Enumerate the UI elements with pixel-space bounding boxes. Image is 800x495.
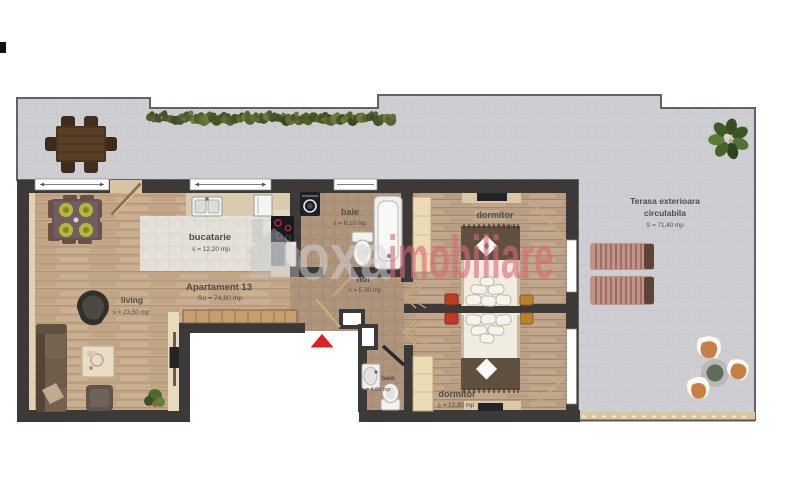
svg-text:dormitor: dormitor [439, 389, 476, 399]
svg-text:bucatarie: bucatarie [189, 232, 231, 243]
svg-text:s = 12,20 mp: s = 12,20 mp [192, 246, 230, 253]
svg-text:oxa: oxa [297, 221, 392, 293]
svg-text:s = 4,80 mp: s = 4,80 mp [362, 387, 391, 393]
svg-text:s = 12,30 mp: s = 12,30 mp [438, 402, 475, 409]
svg-text:baie: baie [341, 207, 359, 217]
svg-text:living: living [121, 295, 143, 305]
svg-text:S = 71,40 mp: S = 71,40 mp [646, 222, 684, 229]
svg-text:Su = 74,80 mp: Su = 74,80 mp [198, 295, 243, 302]
svg-text:circulabila: circulabila [644, 208, 686, 218]
svg-text:s = 23,50 mp: s = 23,50 mp [113, 309, 150, 316]
svg-text:baie: baie [381, 375, 395, 382]
svg-text:Apartament 13: Apartament 13 [186, 282, 252, 293]
svg-text:imobiliare: imobiliare [388, 226, 554, 292]
svg-text:dormitor: dormitor [477, 210, 514, 220]
svg-text:Terasa exterioara: Terasa exterioara [630, 196, 700, 206]
